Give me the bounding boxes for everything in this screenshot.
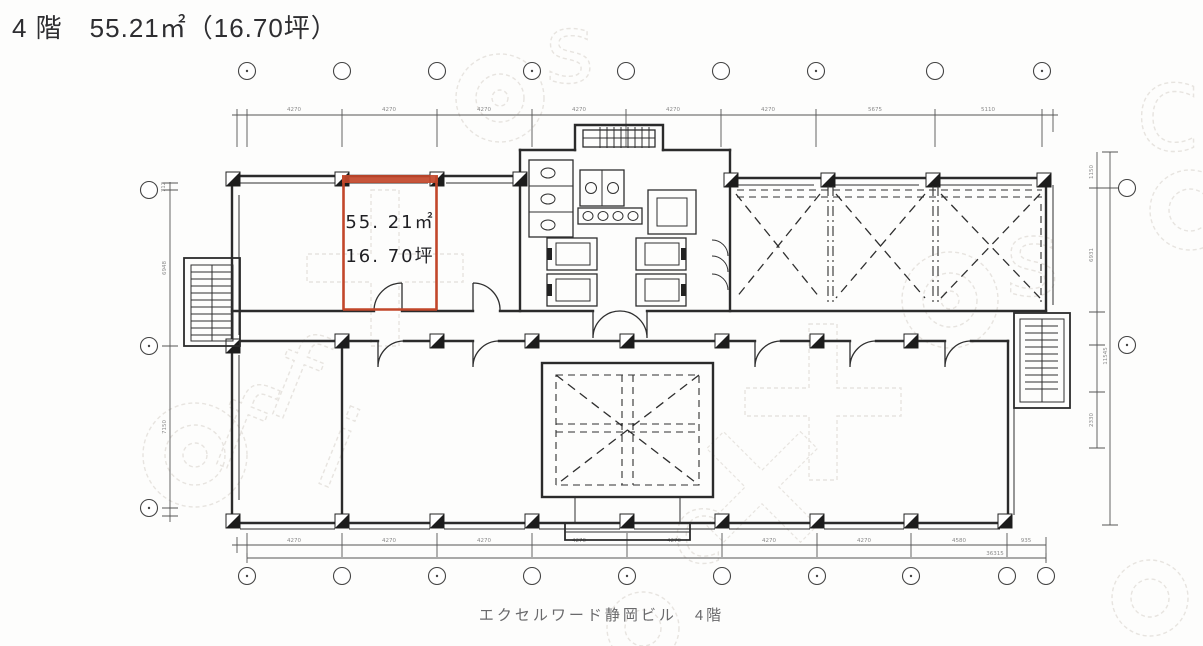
dim-label: 4270: [666, 107, 680, 113]
dim-label: 4270: [667, 538, 681, 544]
watermark-bullseye-icon: [1150, 170, 1203, 250]
dim-label: 4580: [952, 538, 966, 544]
dim-line-top: [232, 109, 1058, 147]
watermark-letter-s: s: [545, 0, 595, 105]
dim-label: 712: [161, 182, 167, 193]
dim-label: 2330: [1089, 413, 1095, 427]
door-arcs: [374, 283, 971, 367]
unit-area-tsubo: 16. 70坪: [345, 246, 434, 267]
dim-line-left: [162, 182, 178, 522]
dim-label: 7150: [162, 420, 168, 434]
grid-circles-top: [239, 63, 1051, 80]
scanned-floorplan-page: 4 階 55.21㎡（16.70坪） s f f i: [0, 0, 1203, 646]
right-stairs: [1014, 313, 1070, 408]
watermark-letter-c: c: [672, 475, 724, 585]
watermark-letter-c: c: [1135, 40, 1201, 179]
highlighted-unit-border: [343, 176, 437, 310]
elevator-shafts: [547, 238, 728, 306]
dim-label: 5110: [981, 107, 995, 113]
highlighted-unit-top-band: [342, 175, 438, 183]
watermark-layer: s f f i s c c: [143, 0, 1203, 646]
grid-circles-bottom: [239, 568, 1055, 585]
grid-circles-right: [1119, 180, 1136, 354]
dim-label: 4270: [477, 107, 491, 113]
grid-circles-left: [141, 182, 158, 517]
dim-label: 1150: [1089, 165, 1095, 179]
floor-plan-drawing: s f f i s c c: [0, 0, 1203, 646]
watermark-letter-s: s: [1005, 198, 1060, 320]
dim-total-label: 36315: [986, 551, 1004, 557]
window-lines: [239, 183, 1053, 529]
dim-line-bottom: [232, 533, 1046, 563]
watermark-letter-i: i: [300, 385, 376, 515]
core-stairwell: [583, 127, 655, 148]
dim-label: 6948: [162, 261, 168, 275]
dim-label: 935: [1021, 538, 1032, 544]
unit-area-m2: 55. 21㎡: [345, 211, 434, 233]
dim-label: 4270: [287, 107, 301, 113]
dim-label: 4270: [382, 538, 396, 544]
dim-label: 4270: [762, 538, 776, 544]
dim-label: 4270: [761, 107, 775, 113]
core-toilets: [529, 160, 642, 237]
dim-label: 6931: [1089, 248, 1095, 262]
grid-axis-markers: [141, 63, 1136, 585]
dim-label: 4270: [572, 538, 586, 544]
dim-label: 4270: [857, 538, 871, 544]
dim-line-right: [1089, 152, 1118, 525]
dim-label: 4270: [382, 107, 396, 113]
building-caption: エクセルワード静岡ビル 4階: [0, 604, 1203, 625]
dim-label: 11545: [1103, 347, 1109, 365]
dim-label: 4270: [572, 107, 586, 113]
wash-basins: [578, 208, 642, 224]
highlighted-unit: 55. 21㎡ 16. 70坪: [342, 175, 438, 310]
core-door-arcs: [712, 240, 728, 290]
dim-label: 4270: [477, 538, 491, 544]
dim-label: 5675: [868, 107, 882, 113]
core-utility-room: [648, 190, 696, 234]
dim-label: 4270: [287, 538, 301, 544]
